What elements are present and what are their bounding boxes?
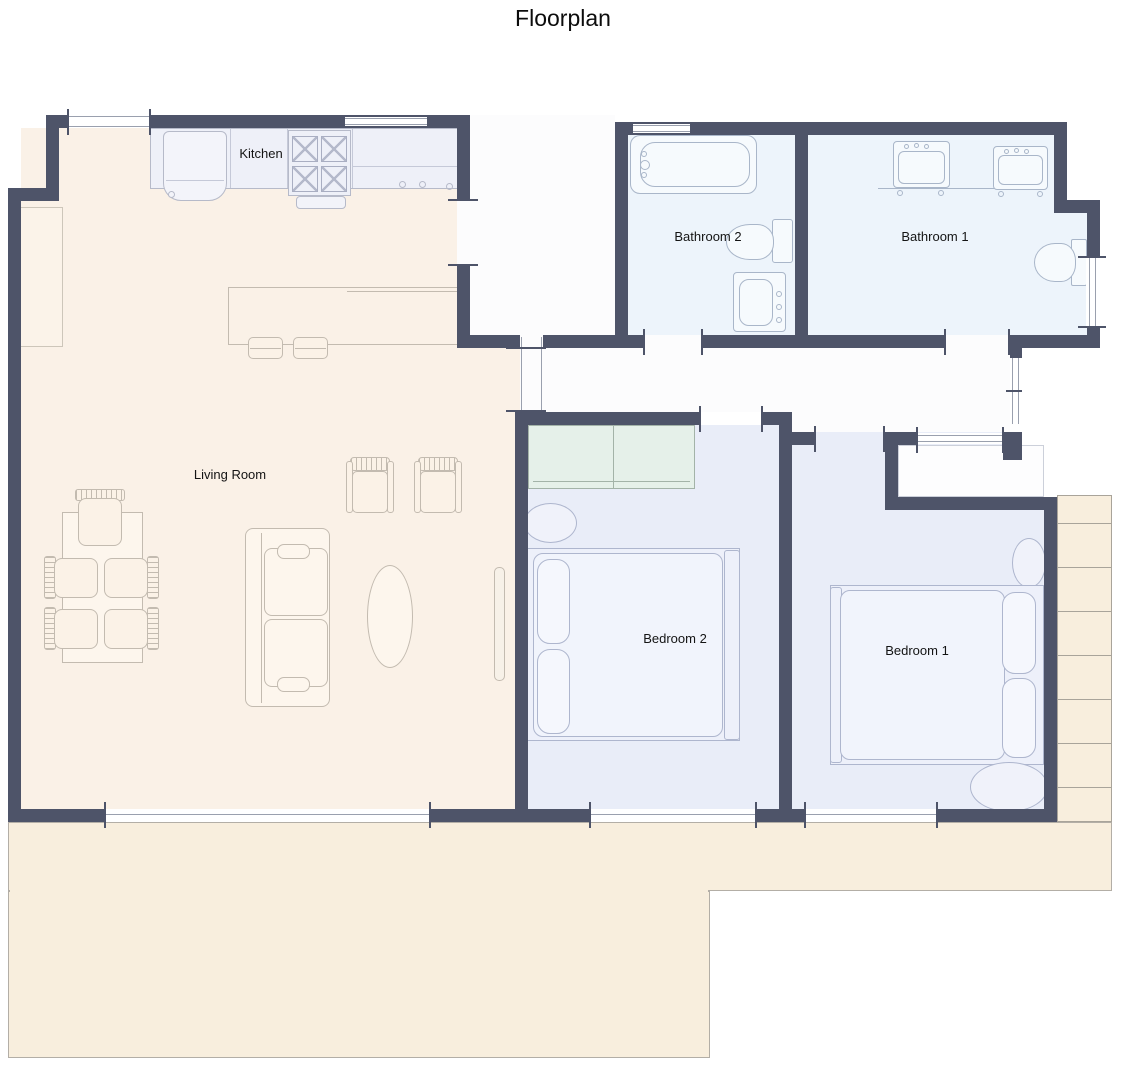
opening-tick xyxy=(589,802,591,828)
wall xyxy=(515,412,528,822)
sink-basin xyxy=(898,151,945,184)
bedroom1-chair xyxy=(1012,538,1046,588)
opening-tick xyxy=(429,802,431,828)
wall xyxy=(8,809,105,822)
bar-stool-line xyxy=(250,348,281,349)
wardrobe-divider xyxy=(613,426,614,488)
dining-chair-seat xyxy=(104,558,148,598)
window-line xyxy=(633,125,690,126)
window-line xyxy=(68,116,150,117)
opening-tick xyxy=(506,410,546,412)
wall xyxy=(615,122,628,348)
faucet-dot xyxy=(1004,149,1009,154)
window-line xyxy=(1089,257,1090,327)
wall-closet xyxy=(20,207,63,347)
counter-knob xyxy=(446,183,453,190)
ottoman xyxy=(970,762,1048,812)
opening-tick xyxy=(1078,326,1106,328)
wall xyxy=(1087,213,1100,257)
window-line xyxy=(633,131,690,132)
floorplan-canvas: Floorplan Kitchen Living Room Bathroom 2… xyxy=(0,0,1127,1069)
window-line xyxy=(1095,257,1096,327)
entry-floor xyxy=(470,115,615,335)
sink-foot xyxy=(938,190,944,196)
bar-stool-line xyxy=(295,348,326,349)
basket xyxy=(524,503,577,543)
opening-tick xyxy=(448,264,478,266)
page-title: Floorplan xyxy=(413,5,713,32)
opening-tick xyxy=(67,109,69,135)
armchair-seat xyxy=(420,471,456,513)
wall xyxy=(779,412,792,822)
sofa-pillow xyxy=(277,677,310,692)
dining-chair-seat xyxy=(54,609,98,649)
stove-burner xyxy=(292,166,318,192)
stair-line xyxy=(1058,523,1111,524)
window-opening xyxy=(590,810,757,821)
opening-tick xyxy=(755,802,757,828)
dining-chair-back xyxy=(147,607,159,650)
window-line xyxy=(917,441,1003,442)
peninsula-edge xyxy=(347,291,466,292)
wall xyxy=(1087,327,1100,348)
bathroom1-label: Bathroom 1 xyxy=(875,229,995,244)
window-opening xyxy=(805,810,937,821)
toilet-bowl xyxy=(1034,243,1076,282)
sink-foot xyxy=(897,190,903,196)
stair-line xyxy=(1058,787,1111,788)
stair-line xyxy=(1058,699,1111,700)
kitchen-label: Kitchen xyxy=(226,146,296,161)
wall xyxy=(885,497,1057,510)
bed2-pillow xyxy=(537,649,570,734)
window-line xyxy=(345,118,427,119)
stove-burner xyxy=(321,136,347,162)
armchair-arm xyxy=(455,461,462,513)
coffee-table xyxy=(367,565,413,668)
sink-knob xyxy=(776,304,782,310)
opening-tick xyxy=(1078,256,1106,258)
kitchen-door-gap xyxy=(457,200,470,265)
counter-divider xyxy=(352,129,353,188)
wall xyxy=(457,265,470,348)
dining-chair-back xyxy=(147,556,159,599)
glass-mid-tick xyxy=(1006,390,1022,392)
wall xyxy=(792,432,815,445)
sink-knob xyxy=(776,291,782,297)
opening-tick xyxy=(1002,427,1004,453)
window-line xyxy=(590,814,757,815)
bedroom1-label: Bedroom 1 xyxy=(857,643,977,658)
armchair-back xyxy=(350,457,390,471)
living-room-label: Living Room xyxy=(160,467,300,482)
sliding-door xyxy=(105,810,430,821)
wall xyxy=(430,809,590,822)
opening-tick xyxy=(944,329,946,355)
opening-tick xyxy=(936,802,938,828)
window-line xyxy=(917,435,1003,436)
armchair-arm xyxy=(387,461,394,513)
wall xyxy=(457,115,470,200)
balcony-nook xyxy=(898,445,1044,497)
stove-burner xyxy=(321,166,347,192)
patio-floor-left xyxy=(8,891,710,1058)
sofa-pillow xyxy=(277,544,310,559)
sink-knob xyxy=(776,317,782,323)
fridge-handle xyxy=(168,191,175,198)
opening-tick xyxy=(883,426,885,452)
opening-tick xyxy=(804,802,806,828)
wall xyxy=(1010,348,1022,358)
sink-foot xyxy=(1037,191,1043,197)
opening-tick xyxy=(761,406,763,432)
bathtub-knob xyxy=(641,172,647,178)
counter-knob xyxy=(399,181,406,188)
sink-basin xyxy=(739,279,773,326)
bedroom2-label: Bedroom 2 xyxy=(615,631,735,646)
exterior-stairs xyxy=(1057,495,1112,822)
opening-tick xyxy=(149,109,151,135)
bathtub-faucet xyxy=(640,160,650,170)
dining-chair-seat xyxy=(54,558,98,598)
opening-tick xyxy=(916,427,918,453)
window-line xyxy=(805,814,937,815)
vanity-counter-line xyxy=(878,188,1010,189)
wall xyxy=(703,335,945,348)
patio-floor-top xyxy=(8,822,1112,891)
hallway-floor-east xyxy=(779,335,1010,432)
faucet-dot xyxy=(924,144,929,149)
faucet-dot xyxy=(914,143,919,148)
bed1-pillow xyxy=(1002,678,1036,758)
wall xyxy=(795,122,808,348)
bathtub-knob xyxy=(641,151,647,157)
wall xyxy=(515,412,700,425)
armchair-seat xyxy=(352,471,388,513)
opening-tick xyxy=(104,802,106,828)
bed1-mattress xyxy=(840,590,1005,760)
wall xyxy=(543,335,615,348)
dining-chair-seat xyxy=(78,498,122,546)
sink-basin xyxy=(998,155,1043,185)
sliding-door-line xyxy=(105,814,430,815)
wall xyxy=(1044,510,1057,822)
opening-tick xyxy=(448,199,478,201)
bed2-pillow xyxy=(537,559,570,644)
fridge-front-line xyxy=(166,180,224,181)
counter-knob xyxy=(419,181,426,188)
wall xyxy=(615,335,643,348)
tv xyxy=(494,567,505,681)
opening-tick xyxy=(1008,329,1010,355)
stair-line xyxy=(1058,655,1111,656)
sink-foot xyxy=(998,191,1004,197)
sofa-back-line xyxy=(261,533,262,703)
wall xyxy=(937,809,1057,822)
faucet-dot xyxy=(1024,149,1029,154)
faucet-dot xyxy=(1014,148,1019,153)
bathtub-inner xyxy=(640,142,750,187)
bathroom2-label: Bathroom 2 xyxy=(648,229,768,244)
window-line xyxy=(68,126,150,127)
stair-line xyxy=(1058,743,1111,744)
window-line xyxy=(345,124,427,125)
opening-tick xyxy=(814,426,816,452)
wardrobe-rail xyxy=(533,481,690,482)
wall xyxy=(1054,200,1100,213)
armchair-back xyxy=(418,457,458,471)
opening-tick xyxy=(701,329,703,355)
wall xyxy=(1003,432,1022,460)
stove-drawer xyxy=(296,196,346,209)
stair-line xyxy=(1058,567,1111,568)
patio-seam-cover xyxy=(10,884,708,897)
bed1-pillow xyxy=(1002,592,1036,674)
opening-tick xyxy=(506,347,546,349)
faucet-dot xyxy=(904,144,909,149)
counter-back-edge xyxy=(352,166,467,167)
opening-tick xyxy=(699,406,701,432)
wall xyxy=(8,188,21,822)
stair-line xyxy=(1058,611,1111,612)
opening-tick xyxy=(643,329,645,355)
toilet-tank xyxy=(772,219,793,263)
dining-chair-seat xyxy=(104,609,148,649)
wardrobe xyxy=(528,425,695,489)
